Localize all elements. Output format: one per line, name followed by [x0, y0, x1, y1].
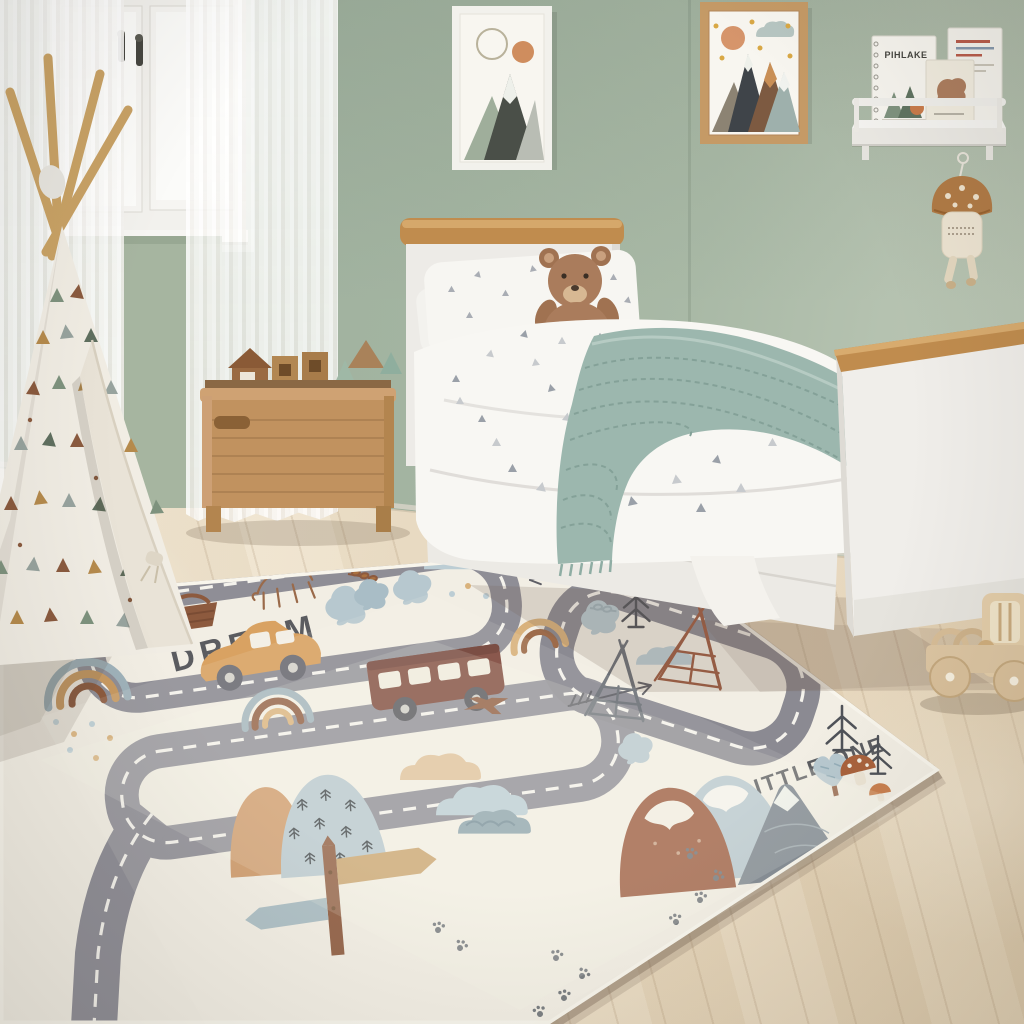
vignette [0, 0, 1024, 1024]
bedroom-scene: PIHLAKE [0, 0, 1024, 1024]
